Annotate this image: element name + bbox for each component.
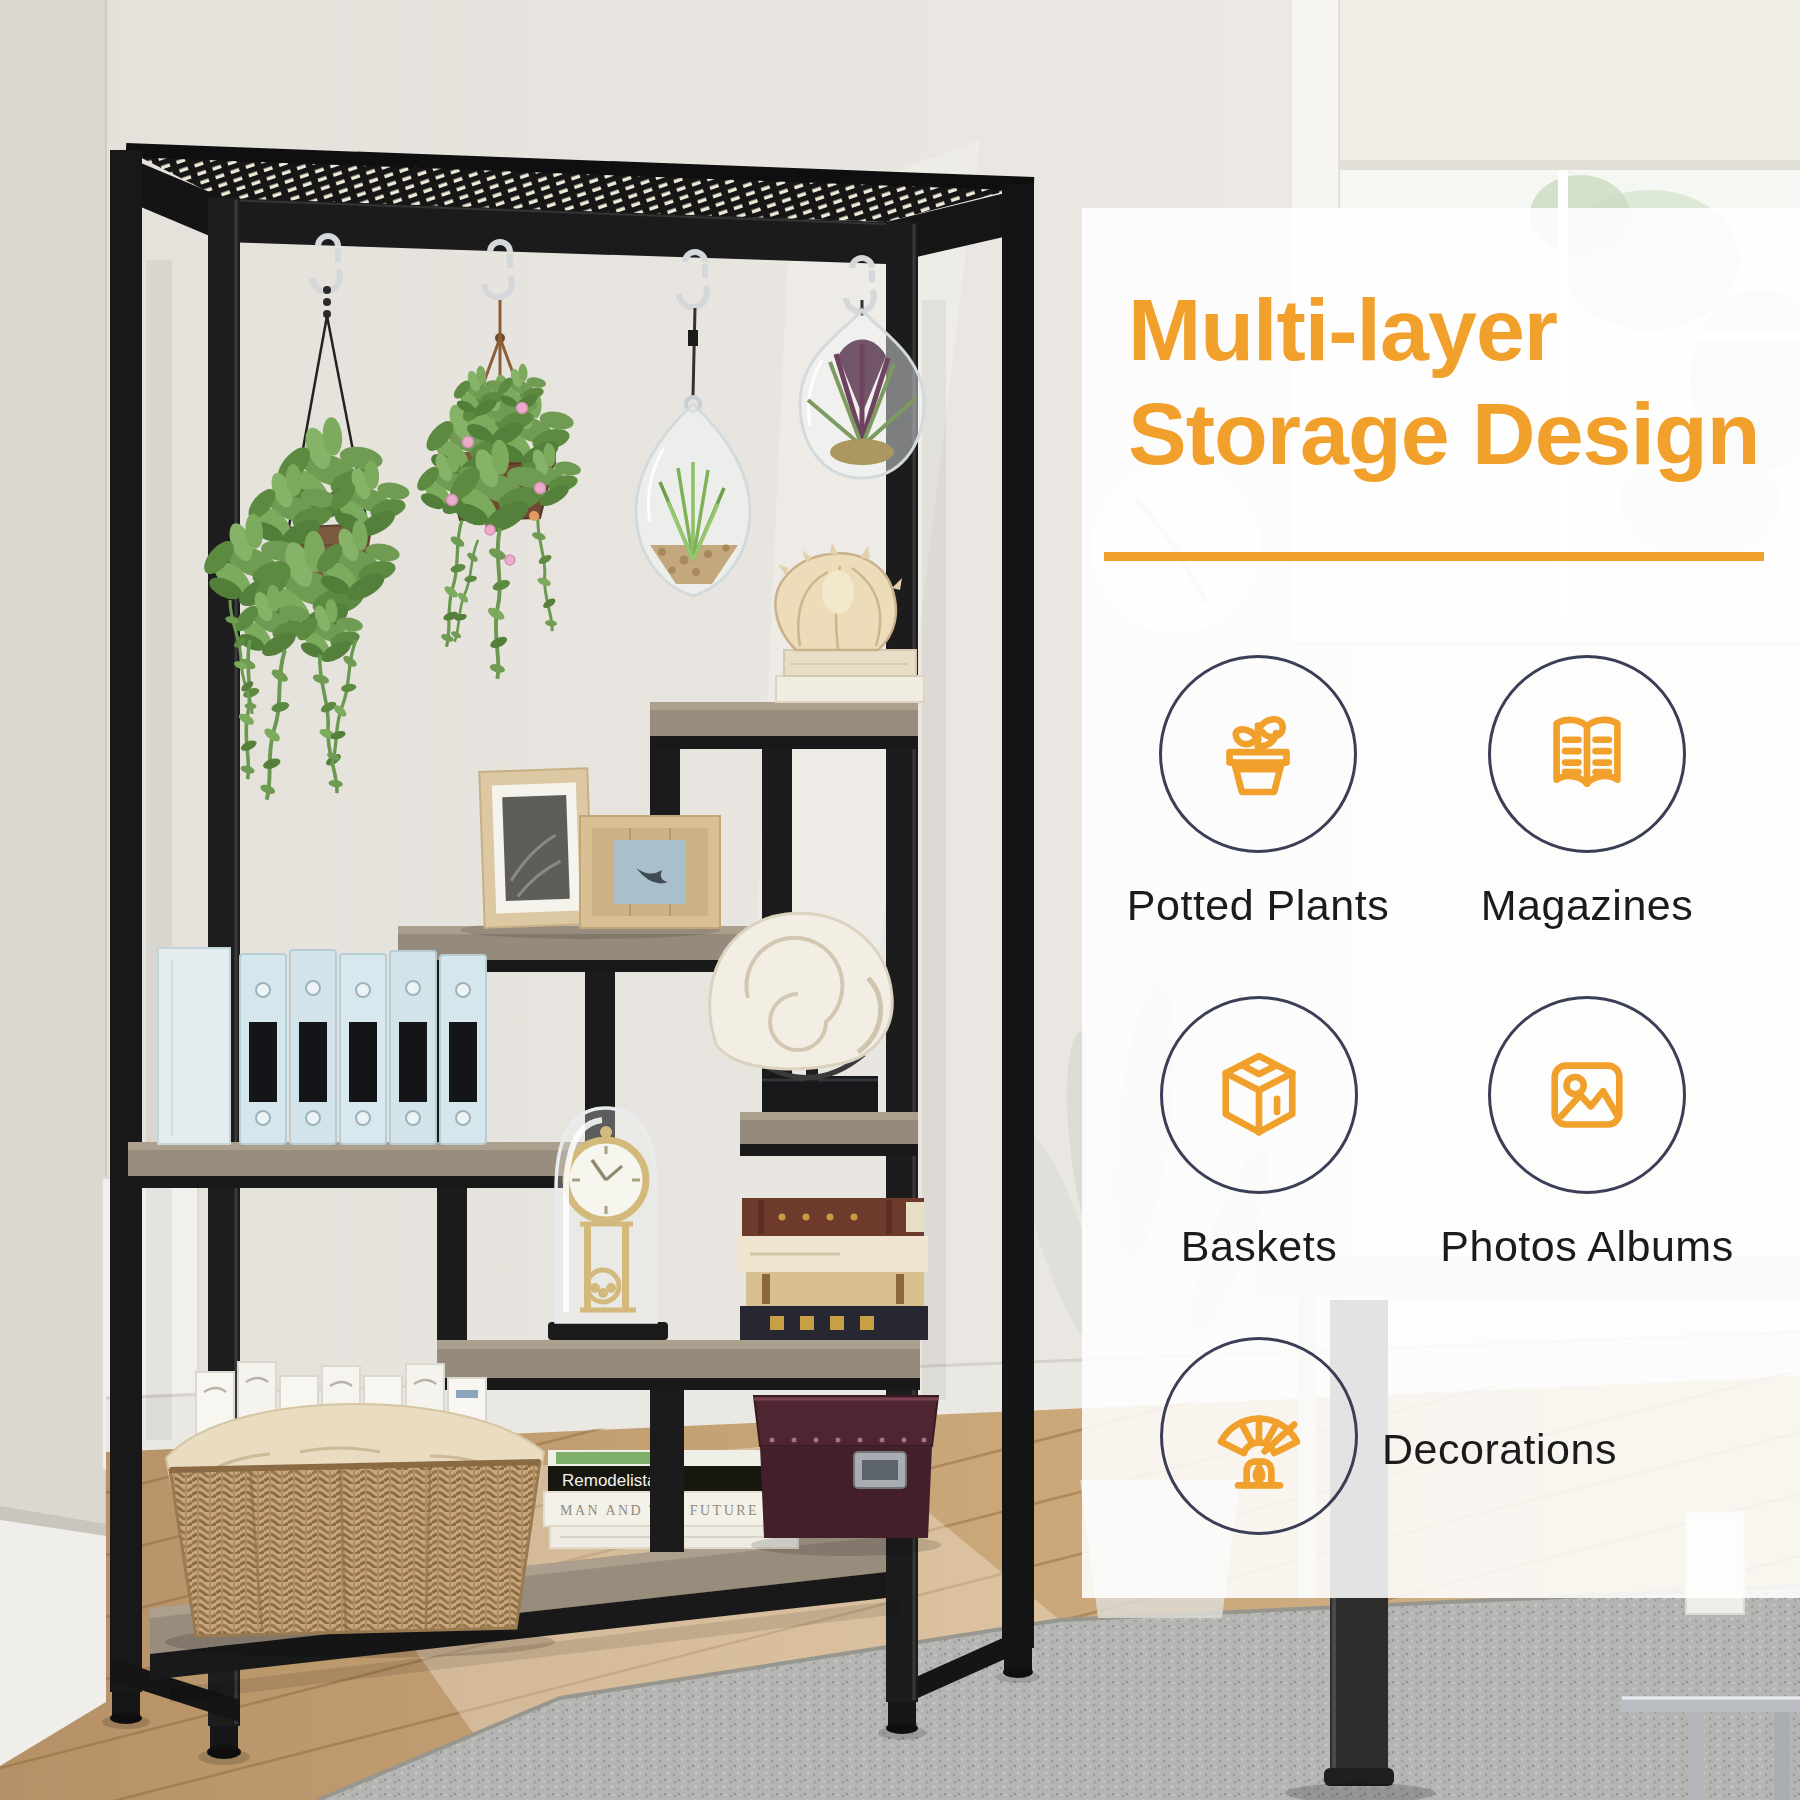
magazine-file-binders — [158, 948, 486, 1144]
feature-label: Magazines — [1481, 881, 1693, 930]
book-stack-antique — [738, 1198, 928, 1340]
feature-photos-albums: Photos Albums — [1488, 996, 1686, 1194]
feature-label: Baskets — [1181, 1222, 1337, 1271]
roller-shade — [1340, 0, 1800, 168]
potted-plant-icon — [1201, 697, 1315, 811]
package-box-icon — [1202, 1038, 1316, 1152]
feature-label: Photos Albums — [1440, 1222, 1733, 1271]
feature-circle — [1160, 996, 1358, 1194]
storage-box — [751, 1396, 941, 1556]
title-line-2: Storage Design — [1128, 382, 1759, 486]
feature-baskets: Baskets — [1160, 996, 1358, 1194]
product-marketing-image: Remodelista MAN AND THE FUTURE — [0, 0, 1800, 1800]
shelf-post — [110, 150, 142, 1692]
feature-circle — [1488, 655, 1686, 853]
hand-fan-icon — [1202, 1379, 1316, 1493]
feature-circle — [1160, 1337, 1358, 1535]
feature-circle — [1159, 655, 1357, 853]
feature-label: Decorations — [1382, 1425, 1617, 1474]
feature-decorations: Decorations — [1160, 1337, 1358, 1535]
feature-label: Potted Plants — [1127, 881, 1389, 930]
feature-magazines: Magazines — [1488, 655, 1686, 853]
feature-potted-plants: Potted Plants — [1159, 655, 1357, 853]
panel-title: Multi-layer Storage Design — [1128, 278, 1759, 486]
shelf-post — [1002, 184, 1034, 1648]
title-underline — [1104, 552, 1764, 561]
book-spine-text: Remodelista — [562, 1471, 657, 1490]
dome-clock — [548, 1108, 668, 1340]
feature-circle — [1488, 996, 1686, 1194]
left-wall — [0, 0, 106, 1766]
title-line-1: Multi-layer — [1128, 278, 1759, 382]
magazines-icon — [1530, 697, 1644, 811]
photo-album-icon — [1530, 1038, 1644, 1152]
